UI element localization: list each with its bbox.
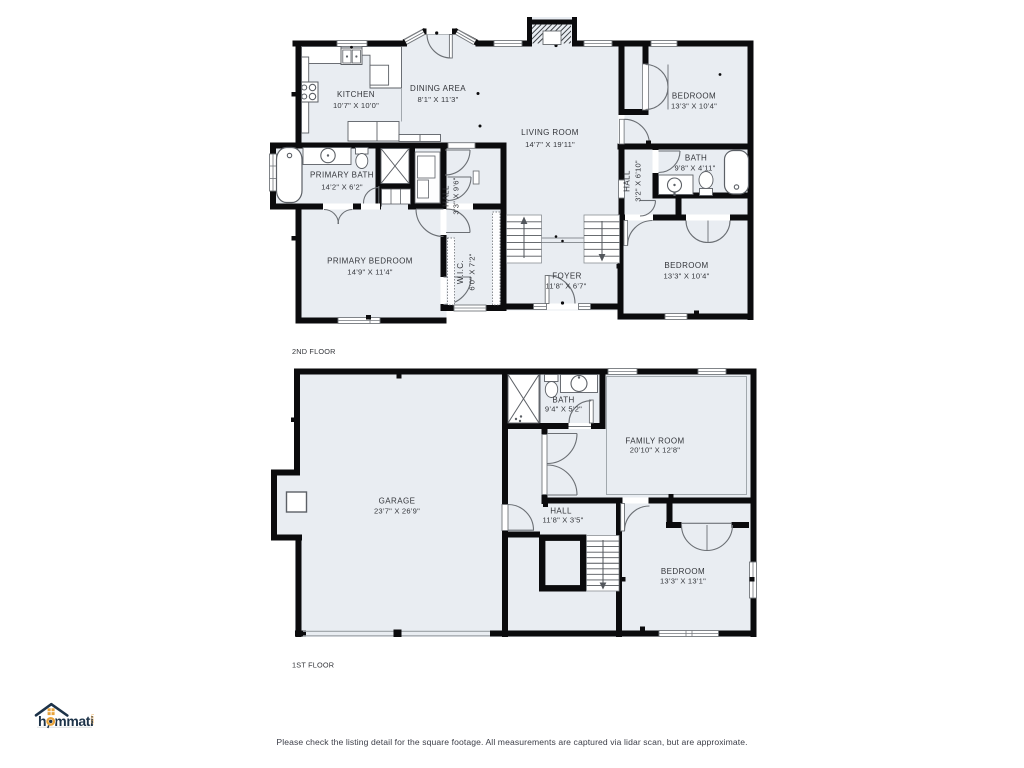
svg-text:2ND FLOOR: 2ND FLOOR [292, 347, 336, 356]
svg-text:HALL: HALL [550, 507, 572, 516]
svg-text:PRIMARY BATH: PRIMARY BATH [310, 171, 374, 180]
svg-text:14’2" X 6’2": 14’2" X 6’2" [321, 183, 363, 192]
svg-text:14’9" X 11’4": 14’9" X 11’4" [347, 268, 393, 277]
svg-text:.com: .com [90, 714, 96, 725]
svg-text:BEDROOM: BEDROOM [672, 92, 716, 101]
svg-text:FAMILY ROOM: FAMILY ROOM [625, 437, 684, 446]
svg-text:DINING AREA: DINING AREA [410, 84, 466, 93]
svg-text:14’7" X 19’11": 14’7" X 19’11" [525, 140, 575, 149]
svg-text:11’8" X 6’7": 11’8" X 6’7" [545, 282, 586, 291]
svg-text:W.I.C.: W.I.C. [456, 260, 465, 284]
svg-text:FOYER: FOYER [552, 272, 582, 281]
svg-text:Please check the listing detai: Please check the listing detail for the … [276, 737, 747, 747]
svg-text:BEDROOM: BEDROOM [661, 567, 705, 576]
svg-text:HALL: HALL [442, 185, 451, 207]
svg-text:LIVING ROOM: LIVING ROOM [521, 128, 579, 137]
svg-text:9’4" X 5’2": 9’4" X 5’2" [545, 405, 582, 414]
svg-text:20’10" X 12’8": 20’10" X 12’8" [630, 446, 681, 455]
svg-text:HALL: HALL [623, 170, 632, 192]
svg-text:13’3" X 10’4": 13’3" X 10’4" [671, 102, 717, 111]
svg-text:3’2" X 6’10": 3’2" X 6’10" [634, 160, 643, 202]
svg-text:23’7" X 26’9": 23’7" X 26’9" [374, 507, 420, 516]
svg-text:8’1" X 11’3": 8’1" X 11’3" [417, 95, 458, 104]
svg-text:1ST FLOOR: 1ST FLOOR [292, 661, 334, 670]
svg-text:3’3" X 9’6": 3’3" X 9’6" [452, 177, 461, 214]
svg-text:9’8" X 4’11": 9’8" X 4’11" [674, 164, 715, 173]
svg-text:BATH: BATH [552, 396, 574, 405]
svg-text:GARAGE: GARAGE [379, 497, 416, 506]
svg-text:BATH: BATH [685, 154, 707, 163]
svg-text:BEDROOM: BEDROOM [664, 261, 708, 270]
svg-text:PRIMARY BEDROOM: PRIMARY BEDROOM [327, 257, 413, 266]
svg-text:13’3" X 10’4": 13’3" X 10’4" [664, 272, 710, 281]
svg-text:6’0" X 7’2": 6’0" X 7’2" [468, 253, 477, 290]
svg-text:11’8" X 3’5": 11’8" X 3’5" [542, 516, 583, 525]
svg-text:13’3" X 13’1": 13’3" X 13’1" [660, 577, 706, 586]
svg-text:KITCHEN: KITCHEN [337, 90, 375, 99]
svg-text:10’7" X 10’0": 10’7" X 10’0" [333, 101, 379, 110]
